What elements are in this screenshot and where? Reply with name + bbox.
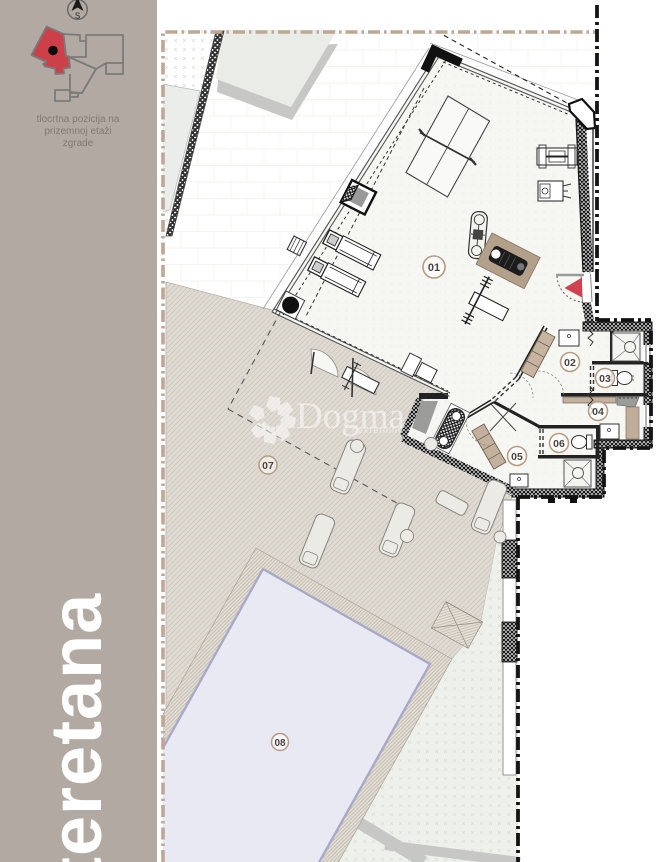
svg-text:02: 02: [564, 357, 576, 369]
svg-text:03: 03: [599, 373, 611, 385]
svg-text:zgrade: zgrade: [63, 138, 94, 149]
svg-text:01: 01: [428, 262, 440, 274]
svg-text:08: 08: [274, 738, 286, 749]
svg-text:S: S: [75, 12, 80, 21]
svg-text:06: 06: [553, 438, 565, 450]
svg-text:07: 07: [262, 460, 274, 472]
svg-text:05: 05: [511, 451, 523, 463]
svg-text:prizemnoj etaži: prizemnoj etaži: [44, 126, 111, 137]
svg-text:tlocrtna pozicija na: tlocrtna pozicija na: [37, 114, 120, 125]
svg-text:teretana: teretana: [37, 593, 117, 862]
svg-text:04: 04: [592, 406, 604, 418]
svg-text:nekretnine: nekretnine: [352, 425, 404, 435]
